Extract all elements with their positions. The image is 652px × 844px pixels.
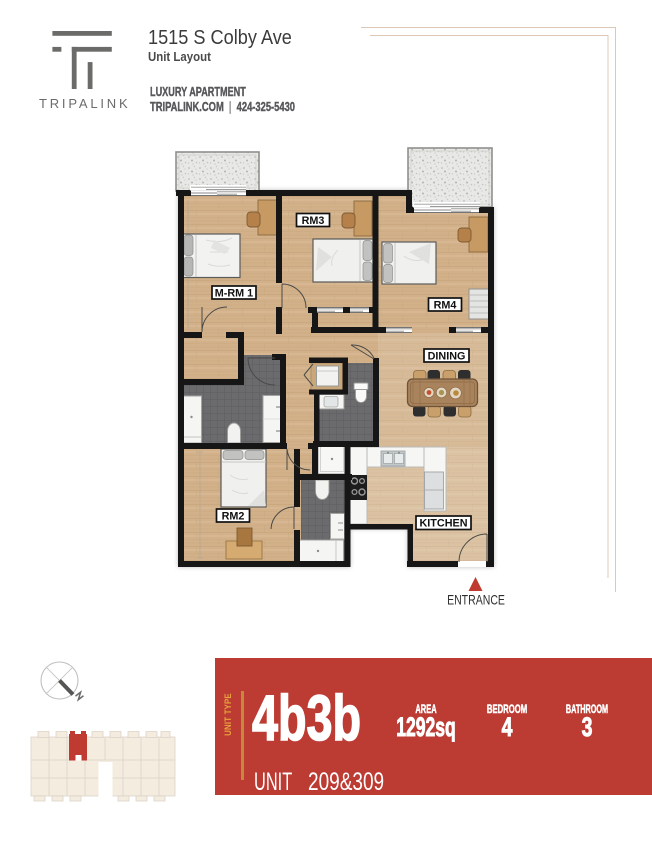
- svg-text:KITCHEN: KITCHEN: [420, 518, 468, 530]
- svg-text:RM2: RM2: [222, 510, 245, 522]
- svg-text:ENTRANCE: ENTRANCE: [447, 592, 505, 608]
- svg-text:DINING: DINING: [428, 350, 466, 362]
- svg-text:TRIPALINK: TRIPALINK: [39, 96, 130, 111]
- svg-text:RM4: RM4: [434, 299, 457, 311]
- svg-text:RM3: RM3: [302, 215, 325, 227]
- svg-text:M-RM 1: M-RM 1: [215, 287, 253, 299]
